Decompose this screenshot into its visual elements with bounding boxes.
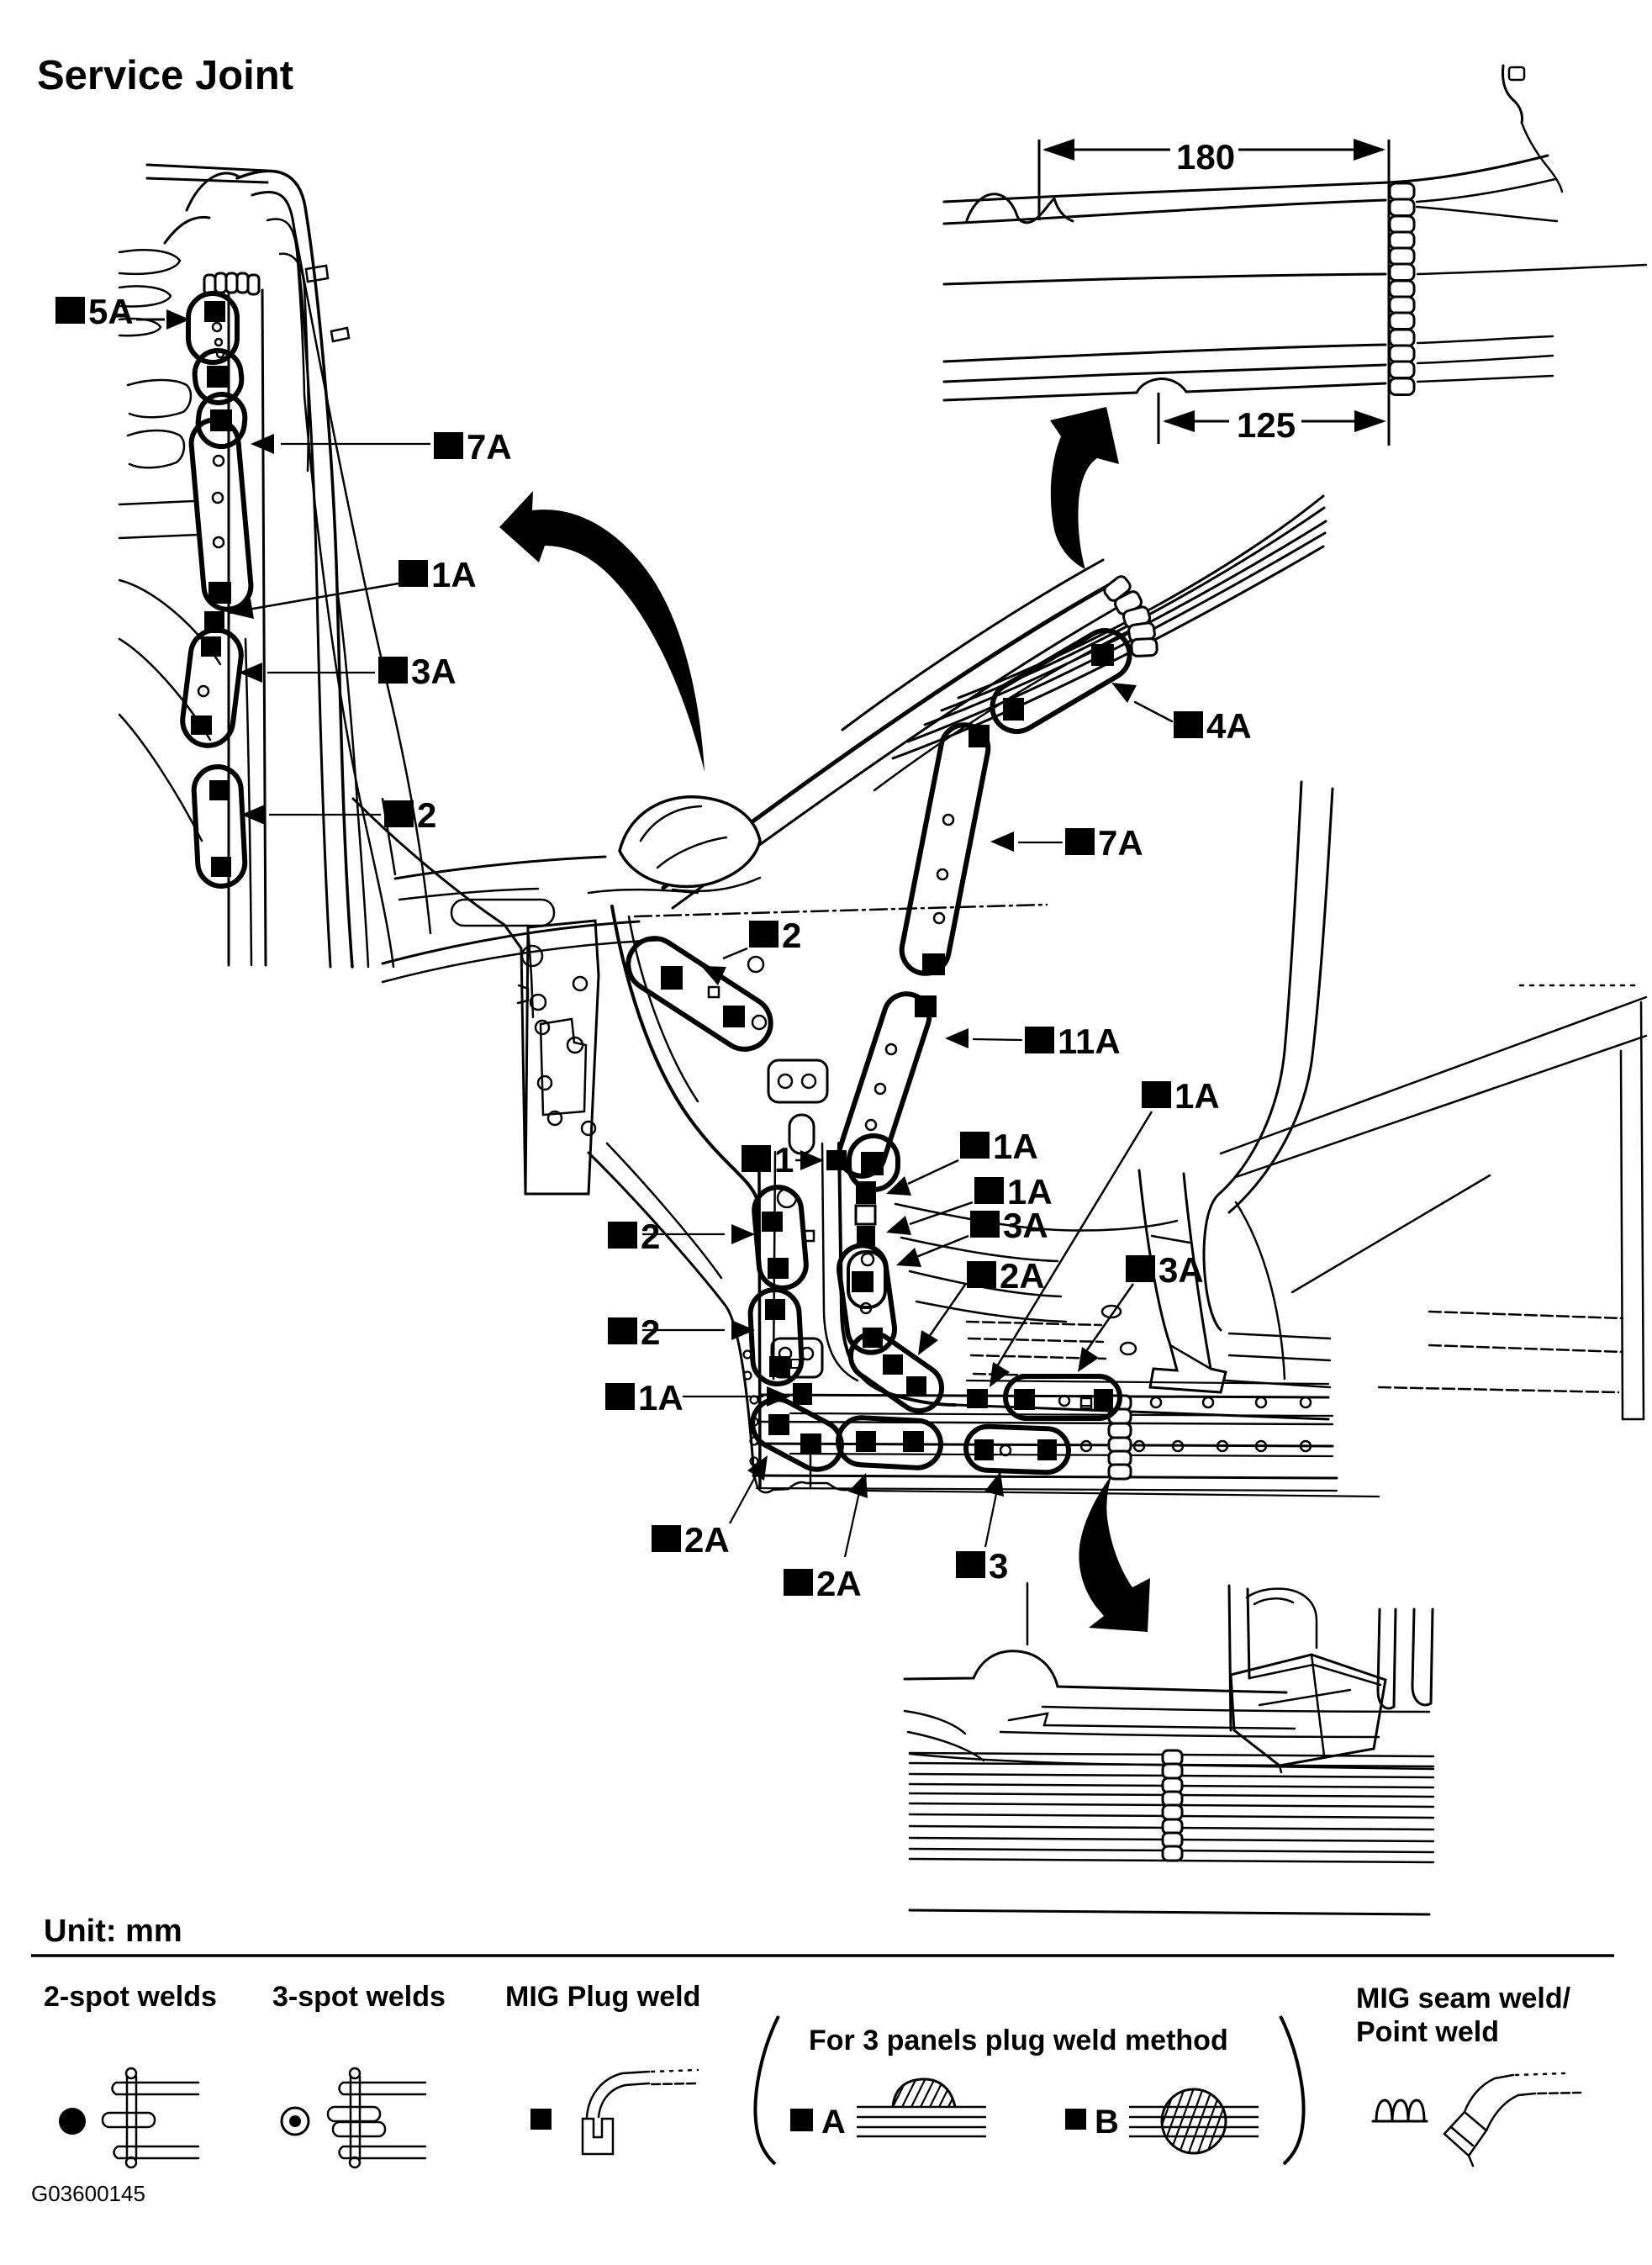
svg-text:MIG seam weld/: MIG seam weld/ — [1356, 1983, 1571, 2014]
svg-text:7A: 7A — [1098, 823, 1143, 863]
svg-text:5A: 5A — [88, 292, 134, 331]
svg-text:B: B — [1095, 2104, 1119, 2141]
svg-text:180: 180 — [1176, 137, 1235, 177]
svg-text:3-spot welds: 3-spot welds — [272, 1981, 446, 2013]
svg-text:3A: 3A — [1003, 1206, 1048, 1245]
svg-text:For 3 panels plug weld method: For 3 panels plug weld method — [809, 2025, 1228, 2056]
svg-text:3: 3 — [989, 1546, 1008, 1586]
svg-text:2: 2 — [782, 916, 801, 955]
svg-text:11A: 11A — [1058, 1022, 1121, 1061]
svg-text:1: 1 — [774, 1140, 794, 1180]
svg-text:1A: 1A — [431, 555, 477, 594]
svg-text:Unit: mm: Unit: mm — [44, 1914, 182, 1949]
svg-text:2A: 2A — [816, 1564, 862, 1603]
svg-text:3A: 3A — [1159, 1250, 1204, 1290]
svg-text:2-spot welds: 2-spot welds — [44, 1981, 217, 2013]
svg-text:1A: 1A — [638, 1378, 683, 1418]
svg-text:2: 2 — [641, 1217, 660, 1256]
svg-text:2A: 2A — [684, 1520, 730, 1560]
svg-text:2: 2 — [641, 1312, 660, 1352]
svg-text:3A: 3A — [411, 652, 457, 691]
svg-text:MIG Plug weld: MIG Plug weld — [505, 1981, 700, 2013]
svg-text:2: 2 — [417, 795, 436, 835]
svg-text:Service Joint: Service Joint — [37, 53, 293, 98]
svg-text:1A: 1A — [1174, 1076, 1220, 1116]
svg-text:A: A — [821, 2104, 846, 2141]
svg-text:4A: 4A — [1206, 706, 1252, 746]
svg-text:125: 125 — [1237, 405, 1296, 445]
svg-text:Point weld: Point weld — [1356, 2016, 1499, 2048]
svg-text:G03600145: G03600145 — [31, 2181, 145, 2206]
svg-text:1A: 1A — [993, 1127, 1038, 1166]
svg-text:2A: 2A — [1000, 1256, 1045, 1296]
svg-text:7A: 7A — [467, 427, 512, 467]
